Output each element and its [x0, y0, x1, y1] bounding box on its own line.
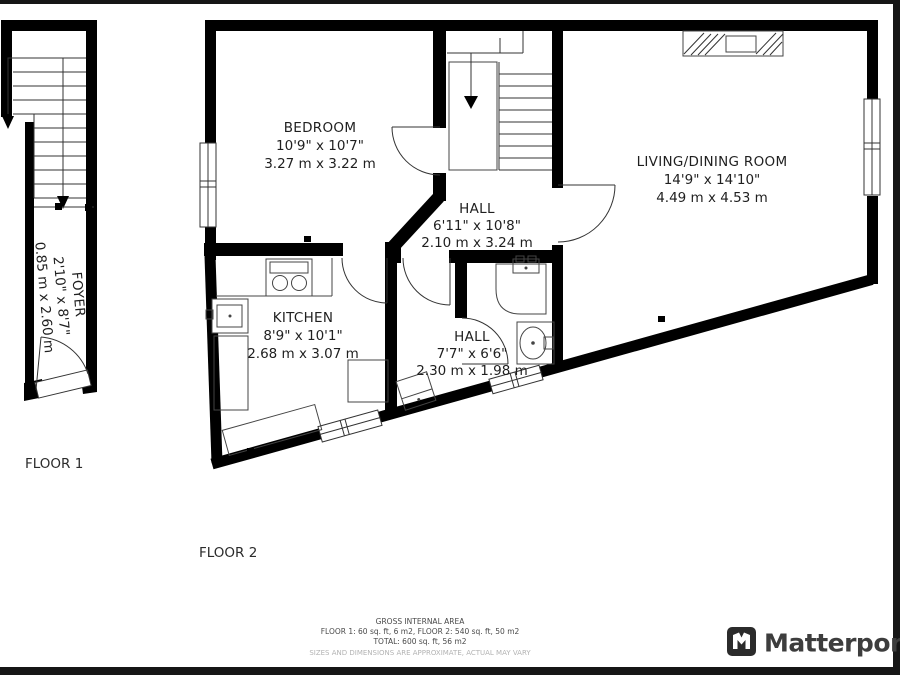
room-bedroom-label: BEDROOM 10'9" x 10'7" 3.27 m x 3.22 m [264, 120, 376, 172]
room-kitchen-label: KITCHEN 8'9" x 10'1" 2.68 m x 3.07 m [247, 310, 359, 362]
bedroom-window [200, 143, 216, 227]
kitchen-metric: 2.68 m x 3.07 m [247, 346, 359, 362]
floor-plan-page: FOYER 2'10" x 8'7" 0.85 m x 2.60 m FLOOR… [0, 0, 900, 675]
hall-lower-metric: 2.30 m x 1.98 m [416, 363, 528, 379]
floor1-label: FLOOR 1 [25, 456, 83, 472]
bedroom-name: BEDROOM [284, 120, 357, 136]
living-imperial: 14'9" x 14'10" [664, 172, 761, 188]
stair-direction-arrow [2, 116, 14, 129]
bedroom-door [392, 127, 440, 175]
summary-floors: FLOOR 1: 60 sq. ft, 6 m2, FLOOR 2: 540 s… [321, 627, 520, 636]
matterport-logo-text: Matterport [764, 629, 900, 658]
room-living-label: LIVING/DINING ROOM 14'9" x 14'10" 4.49 m… [637, 154, 788, 206]
area-summary: GROSS INTERNAL AREA FLOOR 1: 60 sq. ft, … [309, 617, 531, 657]
bedroom-metric: 3.27 m x 3.22 m [264, 156, 376, 172]
floor2-label: FLOOR 2 [199, 545, 257, 561]
kitchen-name: KITCHEN [273, 310, 334, 326]
stair-direction-arrow [464, 96, 478, 109]
fireplace [683, 31, 783, 56]
room-foyer-label: FOYER 2'10" x 8'7" 0.85 m x 2.60 m [31, 238, 91, 354]
image-frame [0, 0, 900, 675]
living-window [864, 99, 880, 195]
hall-upper-metric: 2.10 m x 3.24 m [421, 235, 533, 251]
staircase-floor2 [447, 31, 552, 170]
floor2-plan: BEDROOM 10'9" x 10'7" 3.27 m x 3.22 m HA… [199, 20, 880, 561]
staircase-floor1 [2, 58, 86, 209]
living-door [558, 185, 615, 242]
matterport-logo-icon [727, 627, 756, 656]
matterport-logo: Matterport [727, 627, 900, 658]
bedroom-imperial: 10'9" x 10'7" [276, 138, 364, 154]
hall-connecting-door [403, 258, 450, 305]
living-metric: 4.49 m x 4.53 m [656, 190, 768, 206]
floor-plan-canvas: FOYER 2'10" x 8'7" 0.85 m x 2.60 m FLOOR… [0, 0, 900, 675]
kitchen-door [342, 258, 387, 303]
hall-upper-name: HALL [459, 201, 495, 217]
room-hall-lower-label: HALL 7'7" x 6'6" 2.30 m x 1.98 m [416, 329, 528, 379]
summary-disclaimer: SIZES AND DIMENSIONS ARE APPROXIMATE, AC… [309, 649, 531, 657]
kitchen-imperial: 8'9" x 10'1" [263, 328, 342, 344]
floor1-plan: FOYER 2'10" x 8'7" 0.85 m x 2.60 m FLOOR… [2, 20, 97, 472]
room-hall-upper-label: HALL 6'11" x 10'8" 2.10 m x 3.24 m [421, 201, 533, 251]
hall-lower-imperial: 7'7" x 6'6" [437, 346, 508, 362]
kitchen-appliance [348, 360, 388, 402]
summary-title: GROSS INTERNAL AREA [376, 617, 466, 626]
living-name: LIVING/DINING ROOM [637, 154, 788, 170]
summary-total: TOTAL: 600 sq. ft, 56 m2 [372, 637, 466, 646]
hall-lower-name: HALL [454, 329, 490, 345]
hall-upper-imperial: 6'11" x 10'8" [433, 218, 521, 234]
kitchen-window [318, 410, 382, 442]
